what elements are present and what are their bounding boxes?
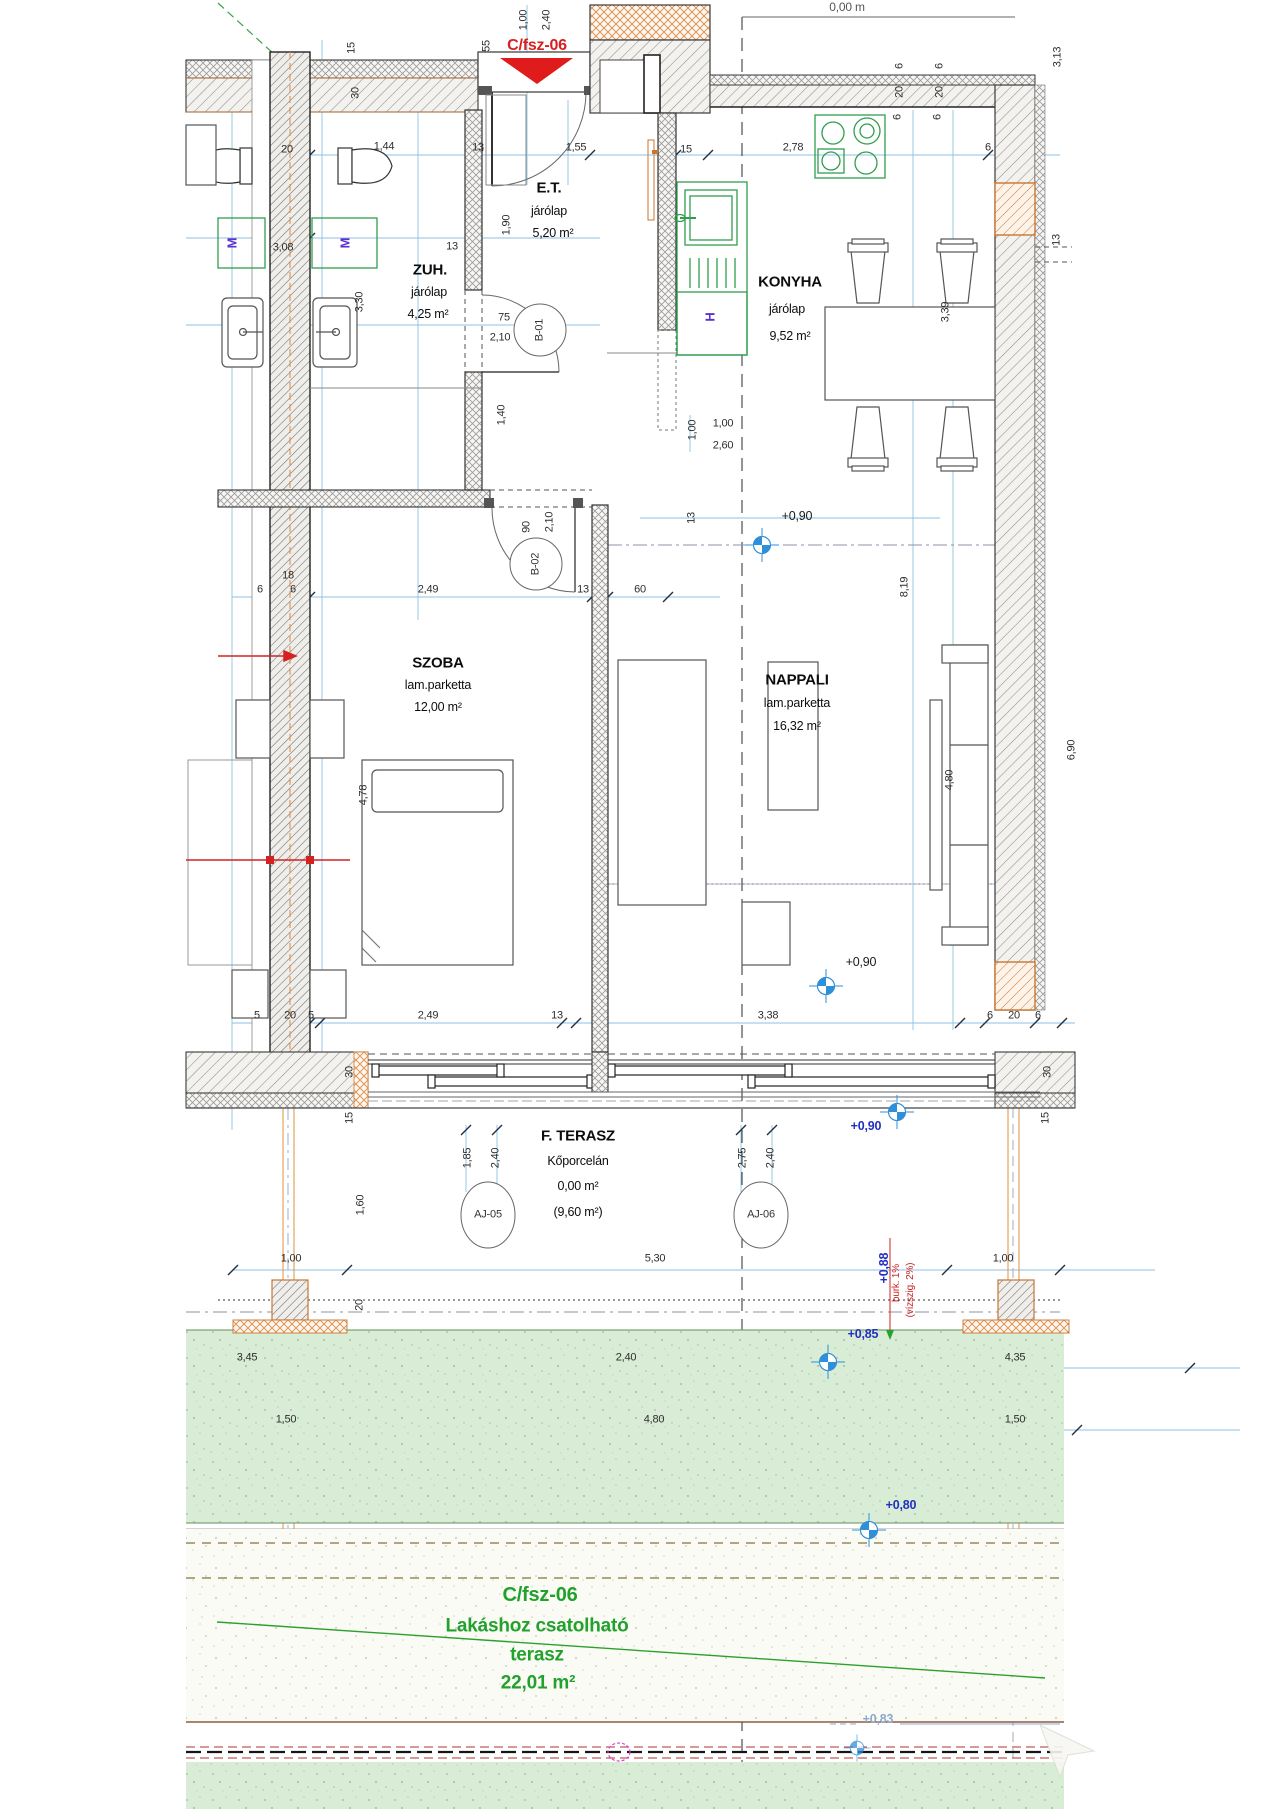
dim: 15	[680, 145, 692, 156]
dim: 2,75	[738, 1148, 749, 1169]
dim: 1,90	[502, 215, 513, 236]
dim: 1,50	[276, 1415, 297, 1426]
dim: 13	[551, 1011, 563, 1022]
dim: 60	[634, 585, 646, 596]
dim: 3,45	[237, 1353, 258, 1364]
dim: 15	[347, 42, 358, 54]
room-terasz-area: 0,00 m²	[558, 1180, 599, 1193]
dim: 6	[987, 1011, 993, 1022]
dim: 4,35	[1005, 1353, 1026, 1364]
window-tag-aj05: AJ-05	[474, 1210, 502, 1221]
dim: 2,40	[542, 10, 553, 31]
dim: 1,44	[374, 142, 395, 153]
dim: 13	[577, 585, 589, 596]
dim: 20	[1008, 1011, 1020, 1022]
dim: 4,80	[945, 770, 956, 791]
room-szoba-finish: lam.parketta	[405, 679, 471, 692]
unit-label-red: C/fsz-06	[507, 38, 567, 54]
dim: 90	[522, 521, 533, 533]
room-zuh-name: ZUH.	[413, 263, 447, 278]
dim: 30	[351, 87, 362, 99]
dim: 1,00	[713, 419, 734, 430]
dim: 2,60	[713, 441, 734, 452]
dim: 18	[282, 571, 294, 582]
dim: 1,40	[497, 405, 508, 426]
dim: 3,30	[355, 292, 366, 313]
level-terasz: +0,90	[851, 1120, 882, 1133]
dim: 8,19	[900, 577, 911, 598]
level-p088: +0,88	[878, 1253, 891, 1284]
floorplan-canvas: C/fsz-06 0,00 m E.T. járólap 5,20 m² ZUH…	[0, 0, 1280, 1809]
dim: 6	[257, 585, 263, 596]
dim: 2,78	[783, 143, 804, 154]
dim: 20	[281, 145, 293, 156]
level-nappali: +0,90	[846, 956, 877, 969]
dim: 2,40	[491, 1148, 502, 1169]
dim: 15	[345, 1112, 356, 1124]
dim: 13	[472, 143, 484, 154]
slope-note-1: burk. 1%	[892, 1264, 902, 1302]
room-nappali-finish: lam.parketta	[764, 697, 830, 710]
dim: 13	[1052, 234, 1063, 246]
dim: 2,40	[616, 1353, 637, 1364]
dim: 3,39	[941, 302, 952, 323]
garden-area: 22,01 m²	[501, 1674, 575, 1693]
dim: 75	[498, 313, 510, 324]
dim: 30	[345, 1066, 356, 1078]
dim: 1,50	[1005, 1415, 1026, 1426]
dim: 3,38	[758, 1011, 779, 1022]
top-clipped-text: 0,00 m	[829, 1, 865, 13]
dim: 20	[895, 86, 906, 98]
dim: 6	[1035, 1011, 1041, 1022]
window-tag-aj06: AJ-06	[747, 1210, 775, 1221]
washer-letter-2: M	[339, 238, 352, 249]
dim: 2,49	[418, 1011, 439, 1022]
dim: 1,55	[566, 143, 587, 154]
dim: 6	[893, 114, 904, 120]
door-tag-b02: B-02	[531, 553, 542, 575]
dim: 30	[1043, 1066, 1054, 1078]
room-nappali-name: NAPPALI	[765, 673, 828, 688]
dim: 1,00	[688, 420, 699, 441]
dim: 20	[355, 1299, 366, 1311]
dim: 13	[687, 512, 698, 524]
dim: 5	[254, 1011, 260, 1022]
room-konyha-finish: járólap	[769, 303, 805, 316]
dim: 6	[895, 63, 906, 69]
dim: 4,78	[359, 785, 370, 806]
dim: 20	[935, 86, 946, 98]
level-p085: +0,85	[848, 1328, 879, 1341]
dim: 1,00	[281, 1254, 302, 1265]
dim: 2,40	[766, 1148, 777, 1169]
room-szoba-area: 12,00 m²	[414, 701, 462, 714]
room-et-area: 5,20 m²	[533, 227, 574, 240]
floorplan-linework	[0, 0, 1280, 1809]
dim: 55	[482, 40, 493, 52]
dim: 6	[985, 143, 991, 154]
room-konyha-area: 9,52 m²	[770, 330, 811, 343]
room-terasz-name: F. TERASZ	[541, 1129, 615, 1144]
dim: 3,13	[1053, 47, 1064, 68]
dim: 1,60	[356, 1195, 367, 1216]
dim: 2,49	[418, 585, 439, 596]
dim: 1,00	[993, 1254, 1014, 1265]
level-p083: +0,83	[863, 1713, 894, 1726]
washer-letter-1: M	[226, 238, 239, 249]
dim: 2,10	[490, 333, 511, 344]
dim: 20	[284, 1011, 296, 1022]
dim: 15	[1041, 1112, 1052, 1124]
dim: 6	[935, 63, 946, 69]
dim: 6	[933, 114, 944, 120]
dim: 5	[308, 1011, 314, 1022]
room-konyha-name: KONYHA	[758, 275, 822, 290]
level-konyha: +0,90	[782, 510, 813, 523]
dim: 13	[446, 242, 458, 253]
dim: 1,85	[463, 1148, 474, 1169]
dim: 6,90	[1067, 740, 1078, 761]
fridge-letter: H	[704, 312, 717, 321]
level-p080: +0,80	[886, 1499, 917, 1512]
garden-line2: terasz	[510, 1646, 564, 1665]
room-et-finish: járólap	[531, 205, 567, 218]
room-nappali-area: 16,32 m²	[773, 720, 821, 733]
garden-unit-label: C/fsz-06	[502, 1585, 577, 1605]
garden-line1: Lakáshoz csatolható	[445, 1617, 628, 1636]
room-terasz-area-alt: (9,60 m²)	[554, 1206, 603, 1219]
room-et-name: E.T.	[536, 181, 561, 196]
dim: 2,10	[545, 512, 556, 533]
dim: 1,00	[519, 10, 530, 31]
room-szoba-name: SZOBA	[412, 656, 464, 671]
slope-note-2: (vízszig. 2%)	[906, 1263, 916, 1318]
room-zuh-finish: járólap	[411, 286, 447, 299]
dim: 3,08	[273, 243, 294, 254]
door-tag-b01: B-01	[535, 319, 546, 341]
dim: 6	[290, 585, 296, 596]
dim: 5,30	[645, 1254, 666, 1265]
room-terasz-finish: Kőporcelán	[547, 1155, 608, 1168]
room-zuh-area: 4,25 m²	[408, 308, 449, 321]
dim: 4,80	[644, 1415, 665, 1426]
